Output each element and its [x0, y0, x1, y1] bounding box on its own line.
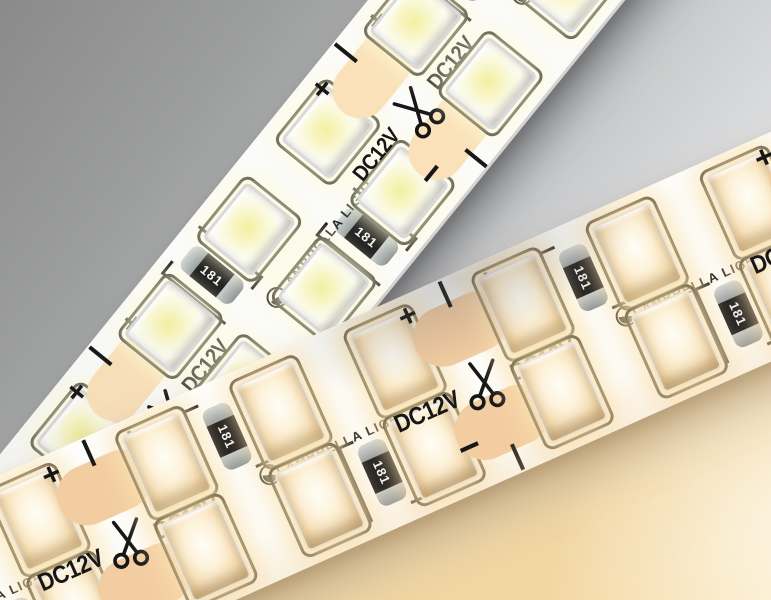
led-emitter	[522, 0, 617, 35]
led-module	[513, 0, 625, 43]
scissors-svg	[458, 352, 512, 415]
cut-tick	[464, 149, 488, 169]
scissors-icon	[101, 511, 155, 574]
scene: ++−−DC12VDC12V181181AMBRELLA LIGHT++−−DC…	[0, 0, 771, 600]
scissors-svg	[101, 511, 155, 574]
scissors-icon	[458, 352, 512, 415]
